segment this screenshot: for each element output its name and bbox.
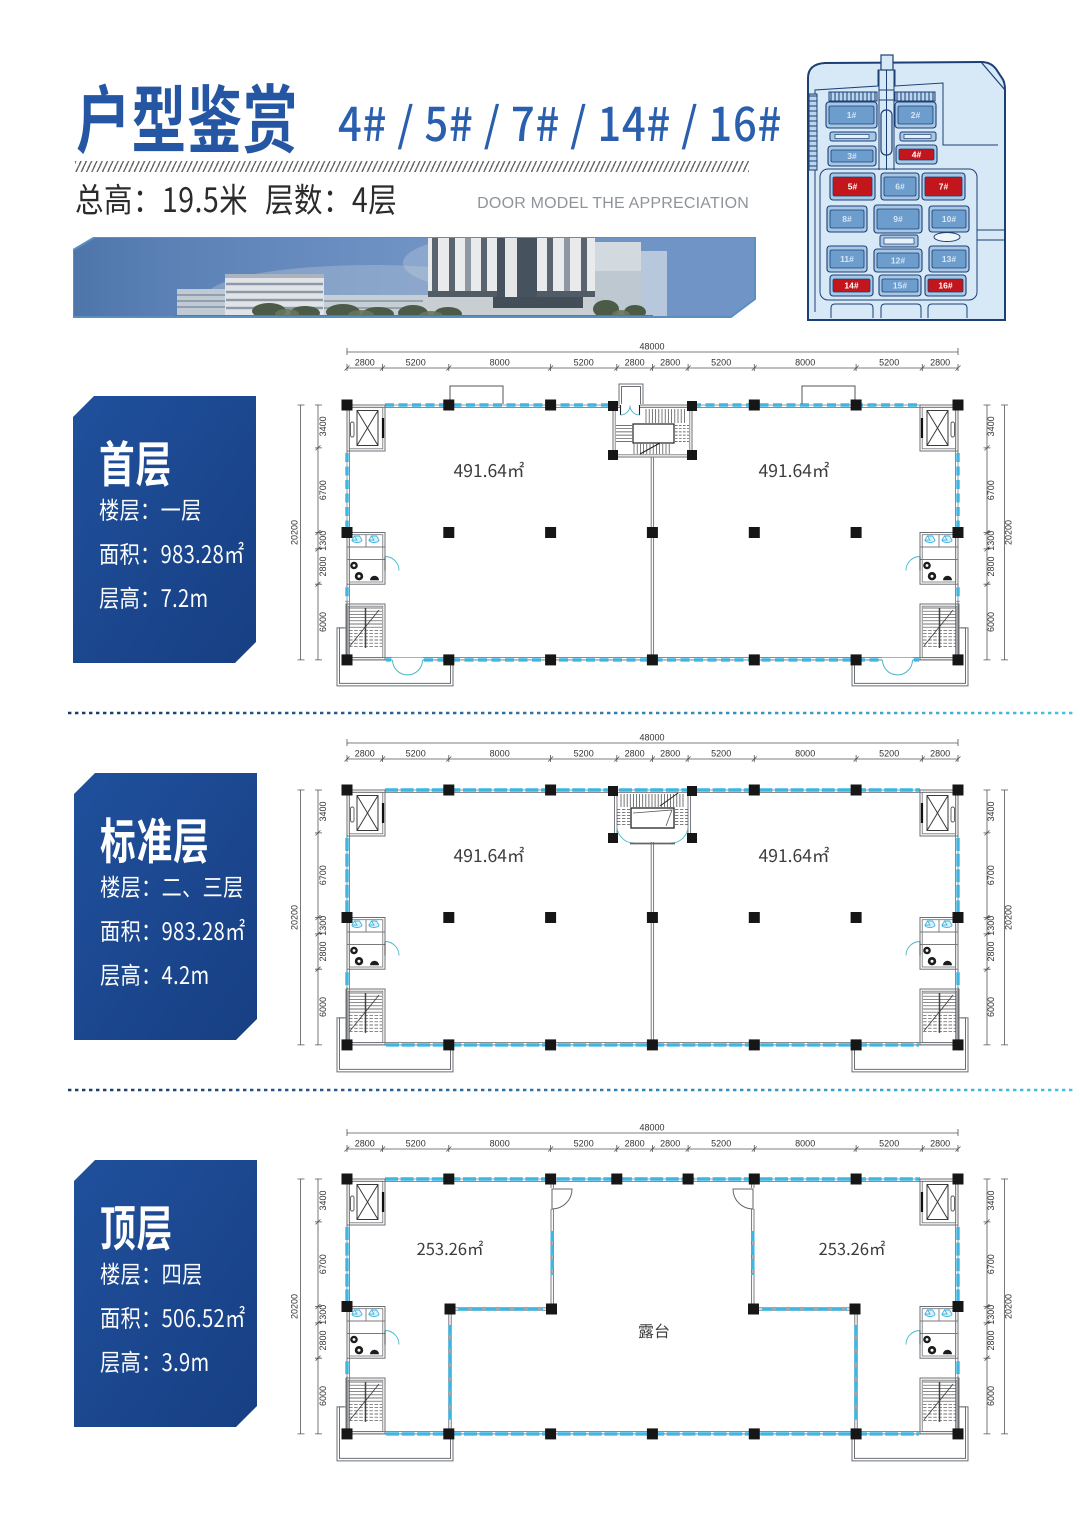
svg-text:6700: 6700 xyxy=(986,480,996,500)
svg-text:20200: 20200 xyxy=(1004,905,1014,930)
svg-text:2800: 2800 xyxy=(355,749,375,759)
svg-text:20200: 20200 xyxy=(1004,1294,1014,1319)
svg-text:48000: 48000 xyxy=(639,733,664,743)
svg-text:2800: 2800 xyxy=(625,358,645,368)
svg-text:2800: 2800 xyxy=(318,1330,328,1350)
svg-text:5200: 5200 xyxy=(711,358,731,368)
svg-text:6000: 6000 xyxy=(318,997,328,1017)
svg-text:5200: 5200 xyxy=(574,358,594,368)
svg-text:2800: 2800 xyxy=(986,941,996,961)
svg-text:3400: 3400 xyxy=(318,416,328,436)
svg-text:6700: 6700 xyxy=(318,480,328,500)
svg-text:3400: 3400 xyxy=(318,801,328,821)
svg-text:3400: 3400 xyxy=(318,1190,328,1210)
svg-text:2800: 2800 xyxy=(318,941,328,961)
svg-text:2800: 2800 xyxy=(660,358,680,368)
svg-text:1300: 1300 xyxy=(318,1305,328,1325)
svg-text:2800: 2800 xyxy=(355,1139,375,1149)
svg-text:5200: 5200 xyxy=(406,749,426,759)
svg-text:5200: 5200 xyxy=(574,1139,594,1149)
svg-text:5200: 5200 xyxy=(574,749,594,759)
svg-text:3400: 3400 xyxy=(986,1190,996,1210)
svg-text:6000: 6000 xyxy=(986,1386,996,1406)
svg-text:6700: 6700 xyxy=(986,865,996,885)
svg-text:6000: 6000 xyxy=(318,1386,328,1406)
svg-text:3400: 3400 xyxy=(986,801,996,821)
svg-text:8000: 8000 xyxy=(795,1139,815,1149)
svg-text:5200: 5200 xyxy=(711,1139,731,1149)
svg-text:5200: 5200 xyxy=(406,358,426,368)
svg-text:1300: 1300 xyxy=(318,916,328,936)
svg-text:1300: 1300 xyxy=(318,531,328,551)
svg-text:8000: 8000 xyxy=(490,358,510,368)
svg-text:2800: 2800 xyxy=(986,556,996,576)
svg-text:48000: 48000 xyxy=(639,1123,664,1133)
svg-text:8000: 8000 xyxy=(795,749,815,759)
svg-text:5200: 5200 xyxy=(879,358,899,368)
svg-text:6700: 6700 xyxy=(986,1254,996,1274)
svg-text:20200: 20200 xyxy=(290,905,300,930)
svg-text:20200: 20200 xyxy=(290,520,300,545)
svg-text:2800: 2800 xyxy=(660,1139,680,1149)
svg-text:2800: 2800 xyxy=(660,749,680,759)
svg-text:3400: 3400 xyxy=(986,416,996,436)
svg-text:8000: 8000 xyxy=(490,1139,510,1149)
svg-text:2800: 2800 xyxy=(355,358,375,368)
svg-text:2800: 2800 xyxy=(986,1330,996,1350)
svg-text:8000: 8000 xyxy=(490,749,510,759)
svg-text:2800: 2800 xyxy=(625,749,645,759)
svg-text:1300: 1300 xyxy=(986,1305,996,1325)
svg-text:5200: 5200 xyxy=(406,1139,426,1149)
svg-text:20200: 20200 xyxy=(1004,520,1014,545)
svg-text:6700: 6700 xyxy=(318,1254,328,1274)
svg-text:6000: 6000 xyxy=(986,612,996,632)
svg-text:6000: 6000 xyxy=(318,612,328,632)
svg-text:1300: 1300 xyxy=(986,916,996,936)
svg-text:6000: 6000 xyxy=(986,997,996,1017)
svg-text:2800: 2800 xyxy=(625,1139,645,1149)
svg-text:8000: 8000 xyxy=(795,358,815,368)
svg-text:6700: 6700 xyxy=(318,865,328,885)
svg-text:2800: 2800 xyxy=(930,1139,950,1149)
svg-text:5200: 5200 xyxy=(711,749,731,759)
svg-text:2800: 2800 xyxy=(318,556,328,576)
svg-text:2800: 2800 xyxy=(930,749,950,759)
svg-text:5200: 5200 xyxy=(879,1139,899,1149)
svg-text:5200: 5200 xyxy=(879,749,899,759)
svg-text:48000: 48000 xyxy=(639,342,664,352)
svg-text:2800: 2800 xyxy=(930,358,950,368)
svg-text:20200: 20200 xyxy=(290,1294,300,1319)
svg-text:1300: 1300 xyxy=(986,531,996,551)
